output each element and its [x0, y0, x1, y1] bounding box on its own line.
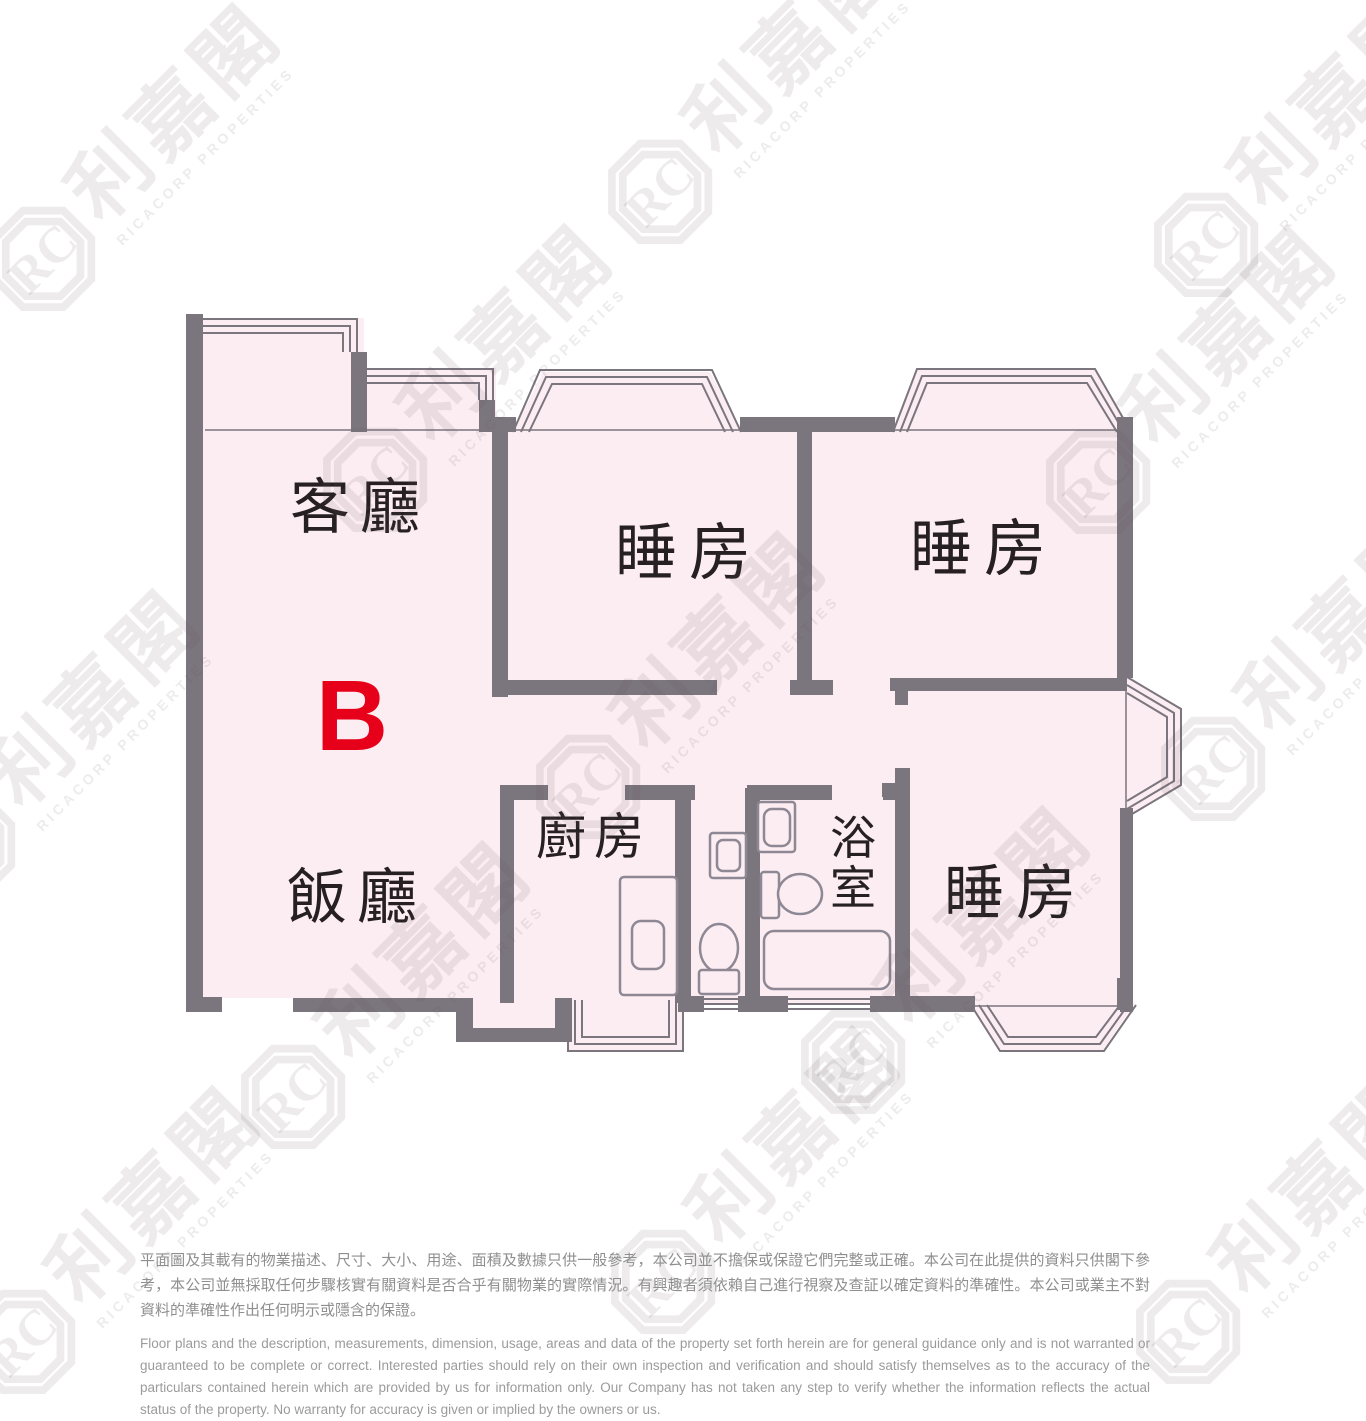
floor-plan: 客廳 睡房 睡房 B 飯廳 廚房 浴 室 睡房 — [0, 0, 1366, 1366]
bathroom-sink — [758, 802, 795, 852]
bedroom-1-bay-fill — [513, 372, 742, 432]
wall-entry-recess — [456, 1028, 572, 1042]
wall-bedroom1-bedroom2 — [797, 425, 812, 683]
bedroom-3-label: 睡房 — [944, 861, 1088, 927]
bedroom-2-label: 睡房 — [910, 516, 1058, 584]
platform-fill — [568, 1000, 683, 1050]
wc-sink — [710, 833, 746, 878]
corridor-fill — [496, 690, 912, 790]
dining-room-label: 飯廳 — [287, 865, 427, 931]
kitchen-sink — [632, 921, 664, 969]
wall-top-between-bays — [740, 417, 895, 432]
living-room-label: 客廳 — [290, 475, 430, 541]
bathroom-label-bottom: 室 — [830, 863, 876, 914]
unit-label: B — [316, 660, 388, 772]
wall-kitchen-left — [500, 785, 514, 1003]
wc-toilet — [699, 924, 739, 994]
wall-living-bedroom1 — [492, 417, 508, 697]
wall-right-upper — [1117, 417, 1133, 678]
disclaimer-zh: 平面圖及其載有的物業描述、尺寸、大小、用途、面積及數據只供一般參考，本公司並不擔… — [140, 1248, 1150, 1323]
wall-bay-corner — [351, 352, 367, 432]
kitchen-label: 廚房 — [536, 809, 652, 865]
disclaimer-block: 平面圖及其載有的物業描述、尺寸、大小、用途、面積及數據只供一般參考，本公司並不擔… — [140, 1248, 1150, 1421]
wall-bedroom3-left — [895, 768, 910, 1012]
disclaimer-en: Floor plans and the description, measure… — [140, 1333, 1150, 1421]
bedroom-3-fill — [895, 688, 1132, 1003]
wall-bedroom1-bottom — [493, 680, 717, 695]
wall-bedroom2-bottom — [890, 678, 1127, 691]
living-room-bay-fill — [192, 318, 364, 432]
kitchen-counter — [620, 877, 677, 995]
bathroom-toilet — [761, 872, 822, 918]
bathtub — [764, 931, 890, 989]
living-room-window-band-fill — [364, 368, 496, 432]
wall-bathroom-top — [747, 785, 832, 800]
bedroom-1-label: 睡房 — [615, 520, 763, 588]
bathroom-label-top: 浴 — [830, 813, 876, 864]
wall-bottom-bath — [870, 996, 975, 1012]
wall-bottom-left — [293, 998, 463, 1012]
wall-left — [186, 314, 203, 1012]
